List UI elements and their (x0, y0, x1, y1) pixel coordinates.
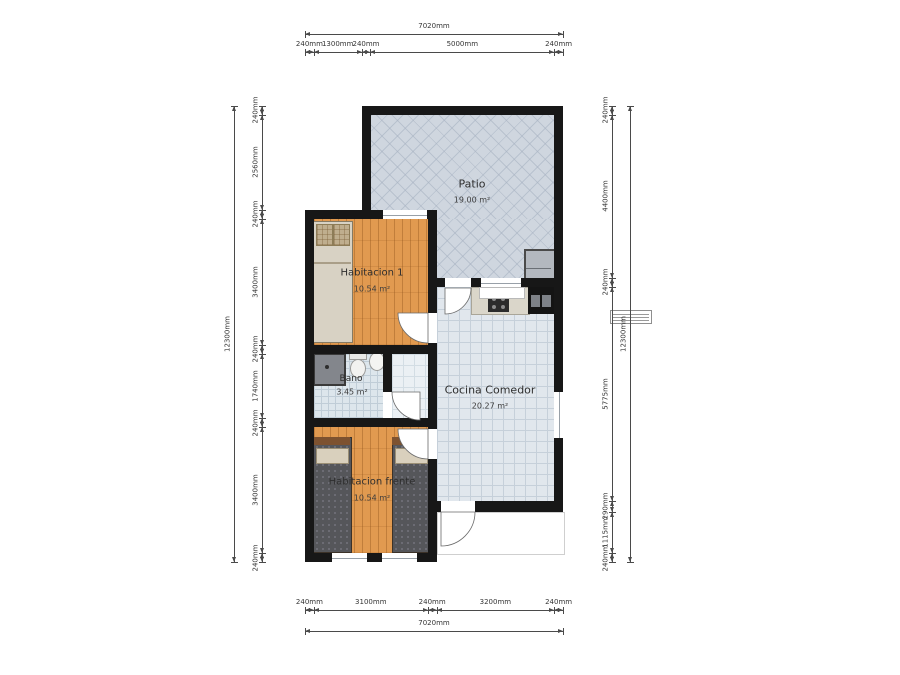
dim-total-label-left: 12300mm (225, 316, 232, 352)
dim-label-bottom-0: 240mm (296, 599, 323, 606)
dim-label-left-5: 1740mm (253, 370, 260, 401)
dim-label-top-2: 240mm (353, 41, 380, 48)
dim-arrow (610, 115, 614, 120)
dim-tick (609, 562, 616, 563)
dim-label-right-6: 240mm (603, 544, 610, 571)
dim-label-right-3: 5775mm (603, 378, 610, 409)
dim-label-left-7: 3400mm (253, 474, 260, 505)
dim-label-left-2: 240mm (253, 201, 260, 228)
dim-arrow (260, 354, 264, 359)
dim-tick (259, 562, 266, 563)
dim-line-top (305, 52, 563, 53)
dim-tick (627, 562, 634, 563)
dim-arrow (260, 427, 264, 432)
dim-arrow (628, 106, 632, 111)
dim-arrow (610, 512, 614, 517)
dim-arrow (610, 501, 614, 506)
dim-arrow (558, 32, 563, 36)
dim-label-bottom-4: 240mm (545, 599, 572, 606)
dim-arrow (558, 50, 563, 54)
dim-arrow (437, 608, 442, 612)
dim-arrow (260, 557, 264, 562)
dim-label-right-2: 240mm (603, 269, 610, 296)
floor-plan-canvas: Patio 19.00 m² Habitacion 1 10.54 m² Ban… (0, 0, 900, 675)
dim-label-bottom-2: 240mm (419, 599, 446, 606)
dim-label-left-8: 240mm (253, 544, 260, 571)
dim-arrow (314, 608, 319, 612)
dim-label-left-6: 240mm (253, 409, 260, 436)
dim-total-line-right (630, 106, 631, 562)
dim-arrow (558, 629, 563, 633)
dim-label-left-3: 3400mm (253, 266, 260, 297)
dim-arrow (232, 106, 236, 111)
dim-tick (563, 628, 564, 635)
dim-total-label-bottom: 7020mm (418, 620, 449, 627)
dim-total-line-bottom (305, 631, 563, 632)
dim-label-top-0: 240mm (296, 41, 323, 48)
dim-label-right-5: 1115mm (603, 517, 610, 548)
dim-total-line-left (234, 106, 235, 562)
dim-line-right (612, 106, 613, 562)
dim-arrow (610, 557, 614, 562)
dim-label-top-4: 240mm (545, 41, 572, 48)
dim-tick (231, 562, 238, 563)
dim-label-right-0: 240mm (603, 97, 610, 124)
dim-total-line-top (305, 34, 563, 35)
dim-label-left-4: 240mm (253, 336, 260, 363)
dim-arrow (558, 608, 563, 612)
dim-arrow (610, 287, 614, 292)
dim-tick (563, 31, 564, 38)
dim-arrow (232, 557, 236, 562)
dim-arrow (628, 557, 632, 562)
dim-arrow (260, 219, 264, 224)
dim-label-top-3: 5000mm (447, 41, 478, 48)
dim-total-label-right: 12300mm (621, 316, 628, 352)
dim-label-top-1: 1300mm (322, 41, 353, 48)
dim-label-right-1: 4400mm (603, 181, 610, 212)
dimension-annotations: 240mm1300mm240mm5000mm240mm7020mm240mm31… (0, 0, 900, 675)
dim-arrow (305, 32, 310, 36)
dim-line-left (262, 106, 263, 562)
dim-label-left-0: 240mm (253, 97, 260, 124)
dim-tick (563, 607, 564, 614)
dim-tick (563, 49, 564, 56)
dim-label-left-1: 2560mm (253, 147, 260, 178)
dim-arrow (314, 50, 319, 54)
dim-label-bottom-3: 3200mm (480, 599, 511, 606)
dim-label-bottom-1: 3100mm (355, 599, 386, 606)
dim-arrow (305, 629, 310, 633)
dim-arrow (370, 50, 375, 54)
dim-total-label-top: 7020mm (418, 23, 449, 30)
dim-arrow (260, 115, 264, 120)
